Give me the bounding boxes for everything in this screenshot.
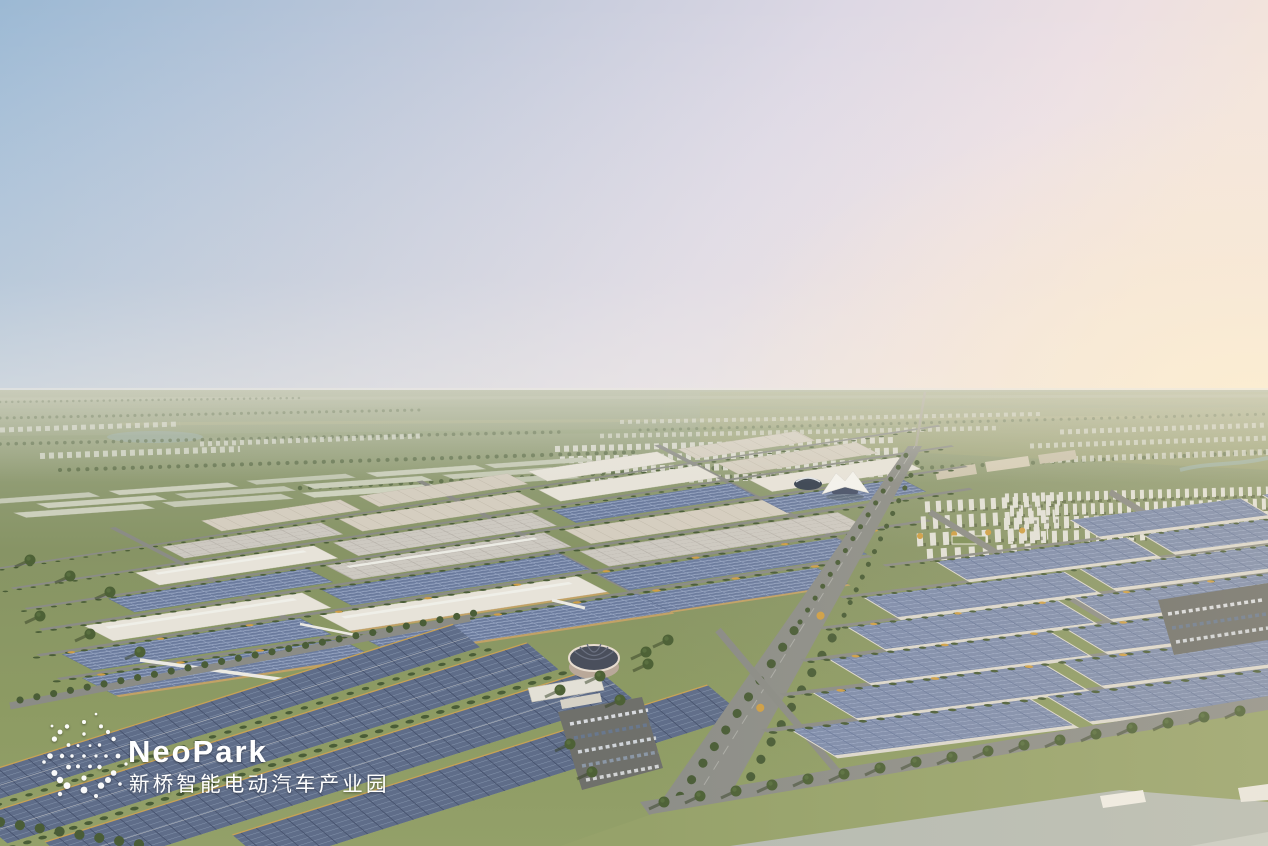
brand-wordmark: NeoPark [128,734,268,769]
round-storage-building [569,644,619,679]
sunset-cast [634,390,1268,846]
neopark-aerial-rendering: NeoPark 新桥智能电动汽车产业园 [0,0,1268,846]
brand-subtitle: 新桥智能电动汽车产业园 [129,773,390,796]
